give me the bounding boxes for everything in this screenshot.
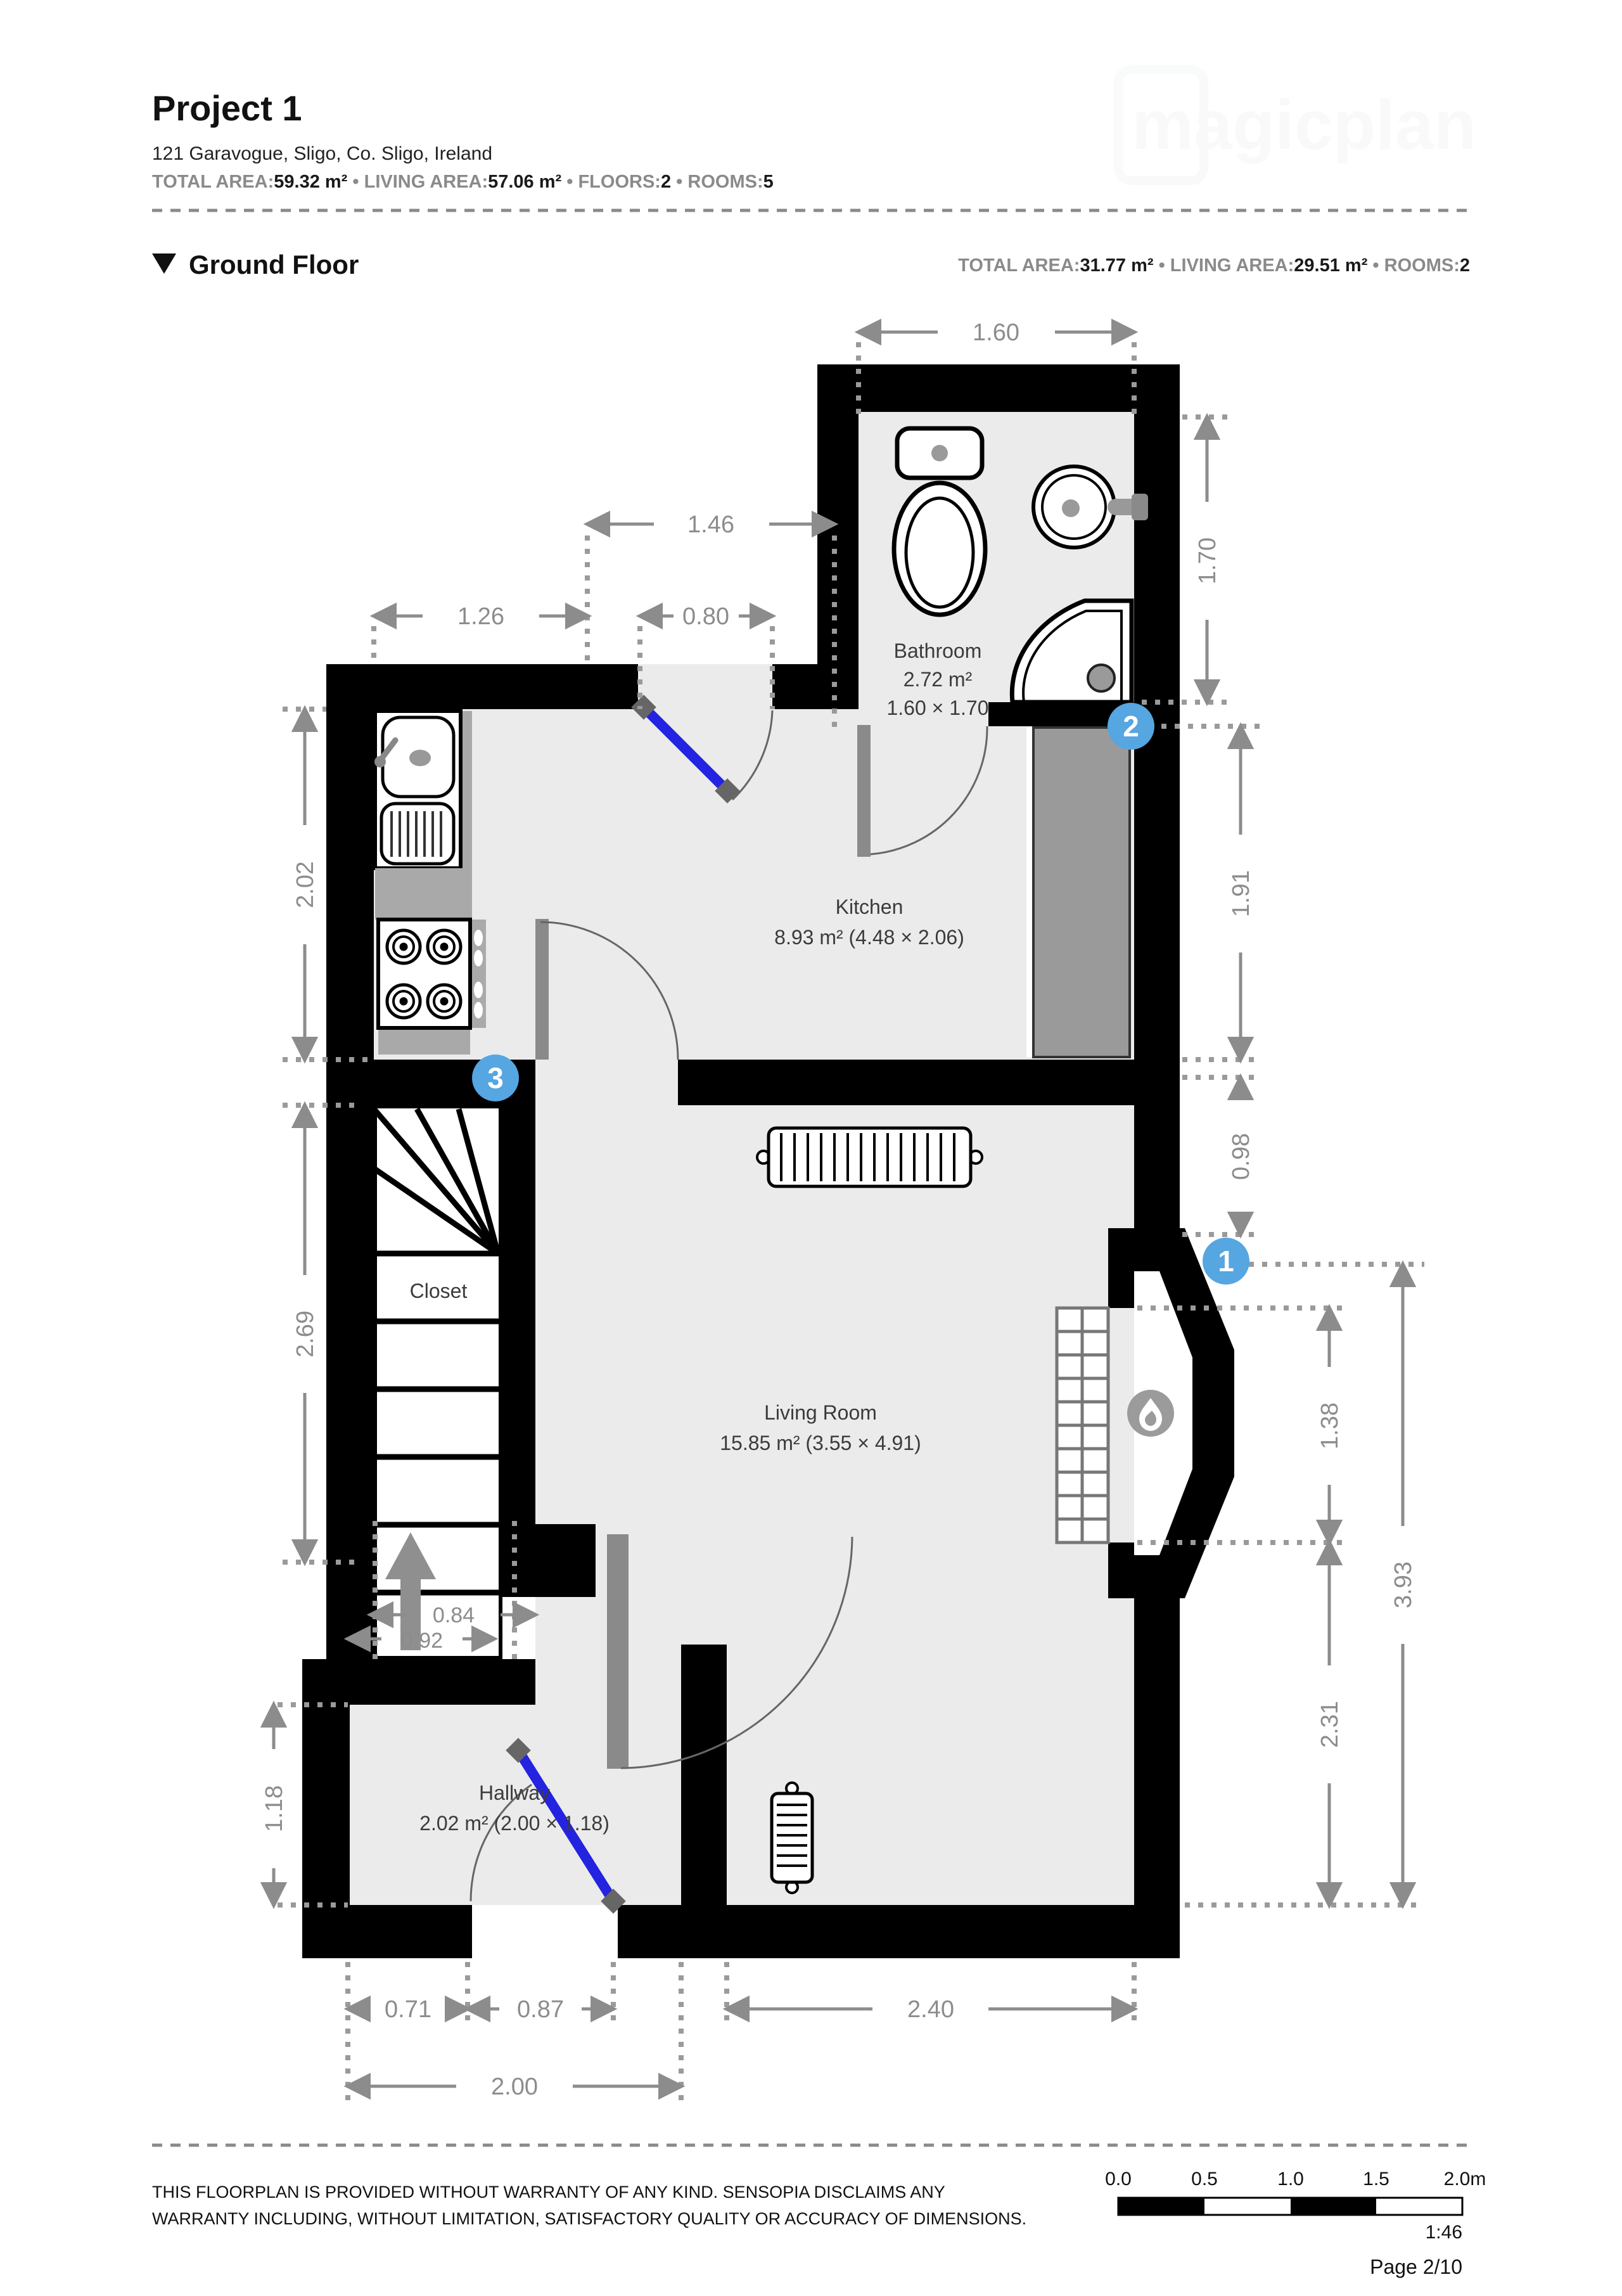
dim-label: 1.18 xyxy=(261,1785,288,1832)
watermark: magicplan xyxy=(1118,70,1476,181)
bay-window xyxy=(1057,1308,1108,1542)
hallway-floor xyxy=(348,1705,681,1905)
svg-text:magicplan: magicplan xyxy=(1132,86,1476,164)
dim-label: 2.02 xyxy=(292,861,319,908)
stove xyxy=(378,920,486,1028)
kitchen-sink xyxy=(374,711,472,868)
dim-label: 0.84 xyxy=(433,1603,475,1627)
floor-stats: TOTAL AREA:31.77 m² • LIVING AREA:29.51 … xyxy=(958,255,1470,276)
wall-window-stub-bottom xyxy=(1108,1542,1134,1598)
dim-label: 2.31 xyxy=(1317,1701,1343,1748)
marker-2: 2 xyxy=(1108,703,1154,750)
marker-1: 1 xyxy=(1203,1238,1249,1285)
page-number: Page 2/10 xyxy=(1370,2255,1462,2278)
floor-section-header: Ground Floor TOTAL AREA:31.77 m² • LIVIN… xyxy=(152,250,1470,279)
dim-label: 2.69 xyxy=(292,1311,319,1357)
bathroom-dims: 1.60 × 1.70 xyxy=(886,696,988,719)
disclaimer-line1: THIS FLOORPLAN IS PROVIDED WITHOUT WARRA… xyxy=(152,2183,945,2202)
kitchen-tall-counter xyxy=(1033,728,1130,1057)
dim-label: 0.71 xyxy=(385,1996,431,2023)
wall-window-stub-top xyxy=(1108,1228,1134,1308)
footer: THIS FLOORPLAN IS PROVIDED WITHOUT WARRA… xyxy=(152,2145,1486,2278)
toilet xyxy=(894,428,985,615)
floor-plan: 1.60 1.46 1.26 0.80 2.02 2.69 1.18 1.70 … xyxy=(261,319,1424,2103)
backdoor-floor xyxy=(638,664,772,709)
wall-hallway-bottom-left xyxy=(302,1905,472,1958)
wall-hallway-top xyxy=(348,1659,535,1705)
header: Project 1 magicplan 121 Garavogue, Sligo… xyxy=(152,70,1476,210)
living-label: Living Room xyxy=(764,1401,877,1424)
dim-label: 1.26 xyxy=(457,603,504,630)
dim-label: 0.98 xyxy=(1228,1133,1255,1180)
dim-label: 1.60 xyxy=(973,319,1019,346)
floor-name: Ground Floor xyxy=(189,250,359,279)
wall-living-bottom xyxy=(681,1905,1180,1958)
svg-text:1: 1 xyxy=(1218,1245,1234,1278)
wall-stair-partition xyxy=(502,1105,535,1524)
dim-label: 0.80 xyxy=(682,603,729,630)
dim-label: 0.92 xyxy=(401,1629,443,1653)
kitchen-detail: 8.93 m² (4.48 × 2.06) xyxy=(774,926,964,949)
svg-text:0.5: 0.5 xyxy=(1191,2169,1218,2190)
dim-label: 1.38 xyxy=(1317,1402,1343,1449)
hallway-label: Hallway xyxy=(479,1781,550,1804)
living-detail: 15.85 m² (3.55 × 4.91) xyxy=(720,1432,921,1454)
triangle-down-icon xyxy=(152,253,176,274)
kitchen-floor xyxy=(374,709,1134,1060)
radiator-hallway xyxy=(772,1783,812,1893)
kitchen-door-floor xyxy=(535,1060,678,1105)
wall-right-lower xyxy=(1134,1598,1180,1958)
dim-label: 1.91 xyxy=(1228,870,1255,917)
scale-ratio: 1:46 xyxy=(1426,2222,1462,2243)
svg-text:2: 2 xyxy=(1123,710,1139,743)
svg-text:3: 3 xyxy=(487,1061,504,1094)
kitchen-counter-2 xyxy=(378,1028,470,1055)
wall-kitchen-top-right xyxy=(772,664,817,709)
scale-bar: 0.0 0.5 1.0 1.5 2.0m 1:46 Page 2/10 xyxy=(1105,2169,1486,2278)
wall-bathroom-left xyxy=(817,364,859,709)
dim-label: 0.87 xyxy=(517,1996,564,2023)
radiator-living-top xyxy=(757,1128,982,1186)
wall-bathroom-top xyxy=(817,364,1178,412)
fireplace xyxy=(1127,1390,1174,1437)
kitchen-counter xyxy=(375,868,472,920)
wall-kitchen-bottom-right xyxy=(678,1060,1134,1105)
disclaimer-line2: WARRANTY INCLUDING, WITHOUT LIMITATION, … xyxy=(152,2209,1026,2228)
svg-text:0.0: 0.0 xyxy=(1105,2169,1132,2190)
closet-label: Closet xyxy=(410,1279,468,1302)
kitchen-label: Kitchen xyxy=(836,895,904,918)
hallway-detail: 2.02 m² (2.00 × 1.18) xyxy=(419,1812,610,1835)
bathroom-label: Bathroom xyxy=(894,639,982,662)
wall-left xyxy=(326,664,374,1659)
dim-label: 1.70 xyxy=(1194,537,1221,584)
project-stats: TOTAL AREA:59.32 m² • LIVING AREA:57.06 … xyxy=(152,172,774,192)
page-title: Project 1 xyxy=(152,88,302,128)
dim-label: 2.40 xyxy=(907,1996,954,2023)
dim-label: 3.93 xyxy=(1390,1562,1417,1608)
bathroom-area: 2.72 m² xyxy=(904,668,973,691)
marker-3: 3 xyxy=(472,1055,519,1101)
address: 121 Garavogue, Sligo, Co. Sligo, Ireland xyxy=(152,143,492,164)
floorplan-page: Project 1 magicplan 121 Garavogue, Sligo… xyxy=(0,0,1622,2296)
drain-icon xyxy=(1088,665,1114,691)
svg-text:1.5: 1.5 xyxy=(1363,2169,1389,2190)
dim-label: 1.46 xyxy=(687,511,734,538)
svg-text:2.0m: 2.0m xyxy=(1444,2169,1486,2190)
svg-text:1.0: 1.0 xyxy=(1277,2169,1304,2190)
dim-label: 2.00 xyxy=(491,2074,538,2100)
